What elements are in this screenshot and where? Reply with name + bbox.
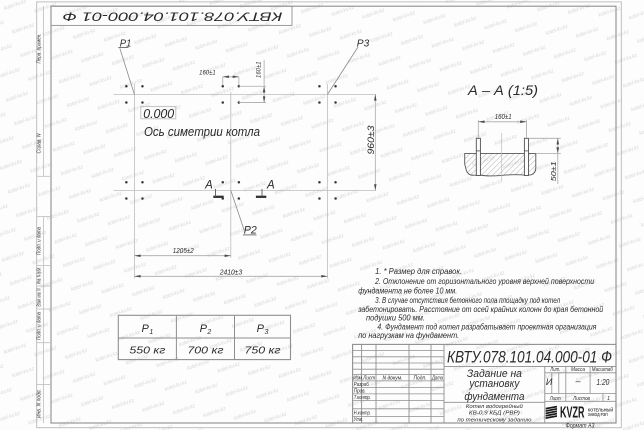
- svg-text:160±1: 160±1: [495, 114, 512, 121]
- svg-text:2410±3: 2410±3: [219, 267, 242, 276]
- svg-text:550 кг: 550 кг: [129, 344, 165, 356]
- svg-text:0.000: 0.000: [143, 106, 175, 121]
- svg-text:Т.контр.: Т.контр.: [354, 395, 371, 401]
- svg-text:Масса: Масса: [571, 367, 585, 373]
- svg-text:Подп. и дата: Подп. и дата: [37, 227, 43, 255]
- svg-text:Подп.: Подп.: [414, 375, 427, 381]
- svg-text:160±1: 160±1: [256, 61, 263, 78]
- svg-text:Взам. инв. N: Взам. инв. N: [37, 288, 43, 306]
- svg-text:1205±2: 1205±2: [173, 246, 194, 255]
- svg-text:Перв. примен.: Перв. примен.: [37, 34, 43, 64]
- svg-text:Р3: Р3: [357, 37, 370, 49]
- svg-text:Утв.: Утв.: [354, 417, 363, 423]
- svg-text:Котел водогрейный: Котел водогрейный: [466, 403, 523, 410]
- svg-text:КВ-0,9 КБД (РВР): КВ-0,9 КБД (РВР): [469, 411, 520, 417]
- svg-text:4. Фундамент под котел разраба: 4. Фундамент под котел разрабатывает про…: [377, 322, 597, 331]
- svg-text:ЗАВОД РЭП: ЗАВОД РЭП: [588, 412, 608, 417]
- svg-text:подушки 500 мм.: подушки 500 мм.: [366, 314, 425, 323]
- svg-text:Н.контр.: Н.контр.: [354, 410, 371, 416]
- svg-text:Листов: Листов: [572, 396, 590, 402]
- svg-text:160±1: 160±1: [199, 70, 216, 77]
- svg-text:Справ. N: Справ. N: [37, 133, 43, 153]
- svg-text:Лист: Лист: [549, 396, 561, 402]
- svg-text:N докум.: N докум.: [383, 375, 403, 381]
- svg-text:700 кг: 700 кг: [187, 344, 223, 356]
- svg-text:А: А: [204, 180, 213, 192]
- svg-text:–: –: [574, 376, 581, 386]
- svg-text:Разраб.: Разраб.: [354, 382, 370, 388]
- svg-text:фундамента: фундамента: [464, 391, 524, 403]
- svg-text:Пров.: Пров.: [354, 388, 366, 394]
- svg-text:А: А: [266, 180, 275, 192]
- svg-text:И: И: [546, 377, 553, 387]
- svg-text:50±1: 50±1: [549, 161, 558, 181]
- svg-text:Инв. N дубл.: Инв. N дубл.: [37, 267, 43, 284]
- svg-text:960±3: 960±3: [366, 126, 376, 155]
- svg-text:фундамента не более 10 мм.: фундамента не более 10 мм.: [358, 286, 457, 295]
- svg-text:Формат А3: Формат А3: [566, 423, 595, 430]
- svg-text:Лит.: Лит.: [549, 367, 560, 373]
- svg-text:А – А (1:5): А – А (1:5): [467, 83, 538, 98]
- svg-text:Изм.Лист: Изм.Лист: [353, 375, 376, 381]
- svg-text:по нагрузкам на фундамент.: по нагрузкам на фундамент.: [358, 331, 459, 340]
- svg-text:KVZR: KVZR: [560, 404, 585, 421]
- svg-text:Масштаб: Масштаб: [592, 367, 613, 373]
- svg-text:1:20: 1:20: [596, 377, 609, 387]
- svg-text:750 кг: 750 кг: [245, 344, 281, 356]
- svg-text:2. Отклонение от горизонтально: 2. Отклонение от горизонтального уровня …: [374, 277, 594, 286]
- svg-text:Дата: Дата: [431, 375, 443, 381]
- svg-text:КВТУ.078.101.04.000-01 Ф: КВТУ.078.101.04.000-01 Ф: [62, 9, 282, 23]
- svg-text:по техническому заданию: по техническому заданию: [457, 417, 532, 423]
- svg-text:установку: установку: [468, 378, 519, 390]
- svg-text:1. * Размер для справок.: 1. * Размер для справок.: [375, 267, 462, 276]
- svg-text:1: 1: [607, 396, 610, 402]
- svg-text:Ось симетрии котла: Ось симетрии котла: [144, 124, 260, 139]
- svg-text:КВТУ.078.101.04.000-01 Ф: КВТУ.078.101.04.000-01 Ф: [447, 348, 612, 366]
- svg-text:3. В случае отсутствия бетонно: 3. В случае отсутствия бетонного пола пл…: [375, 296, 560, 305]
- svg-text:Инв. N подл.: Инв. N подл.: [37, 389, 43, 418]
- svg-text:Подп. и дата: Подп. и дата: [37, 312, 43, 340]
